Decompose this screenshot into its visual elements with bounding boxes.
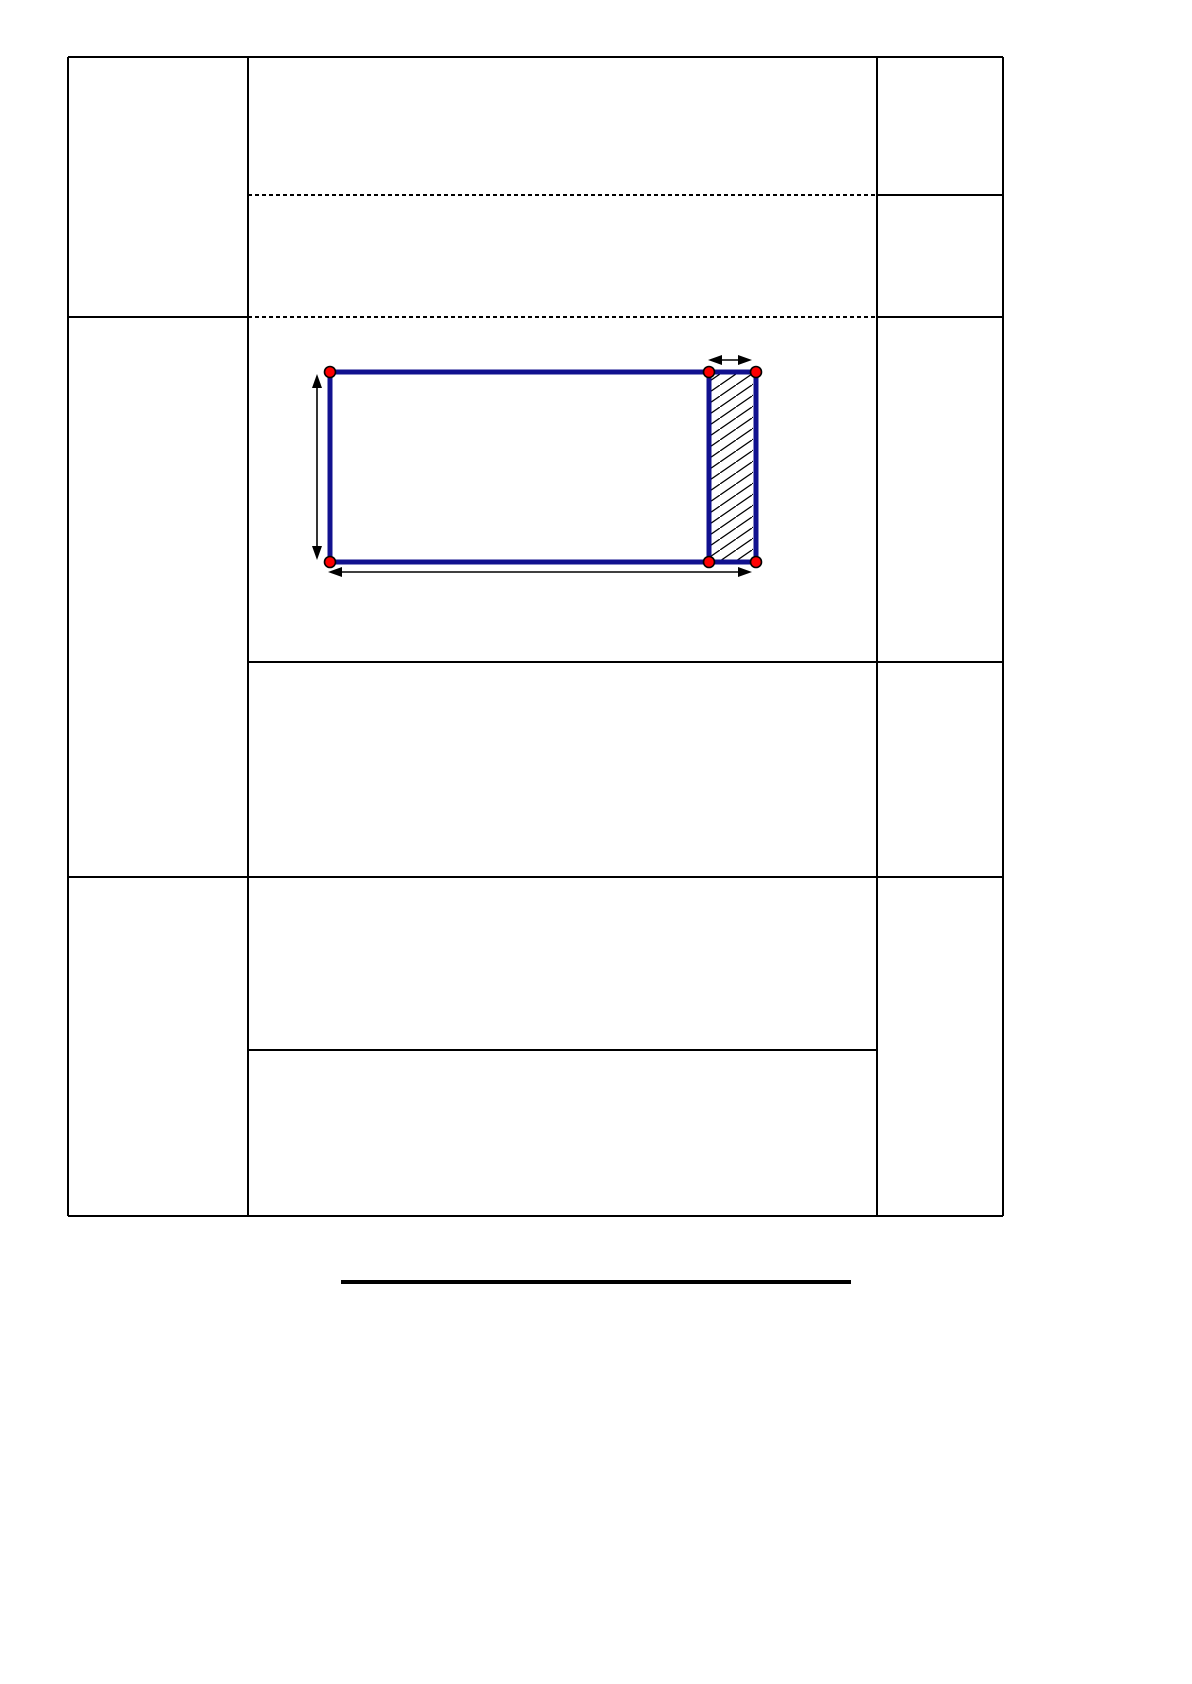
vertex-dot <box>704 367 715 378</box>
dimension-arrow-strip-head <box>738 355 752 365</box>
dimension-arrow-width-head <box>738 567 752 577</box>
vertex-dot <box>751 557 762 568</box>
dimension-arrow-strip-head <box>708 355 722 365</box>
vertex-dot <box>751 367 762 378</box>
vertex-dot <box>325 557 336 568</box>
dimension-arrow-height-head <box>312 546 322 560</box>
vertex-dot <box>325 367 336 378</box>
dimension-arrow-height-head <box>312 374 322 388</box>
hatched-strip <box>711 374 753 560</box>
vertex-dot <box>704 557 715 568</box>
heading-rule <box>341 1280 851 1284</box>
dimension-arrow-width-head <box>328 567 342 577</box>
document-page <box>0 0 1192 1684</box>
diagram-rectangle <box>330 372 756 562</box>
rectangle-diagram <box>0 0 1192 1684</box>
